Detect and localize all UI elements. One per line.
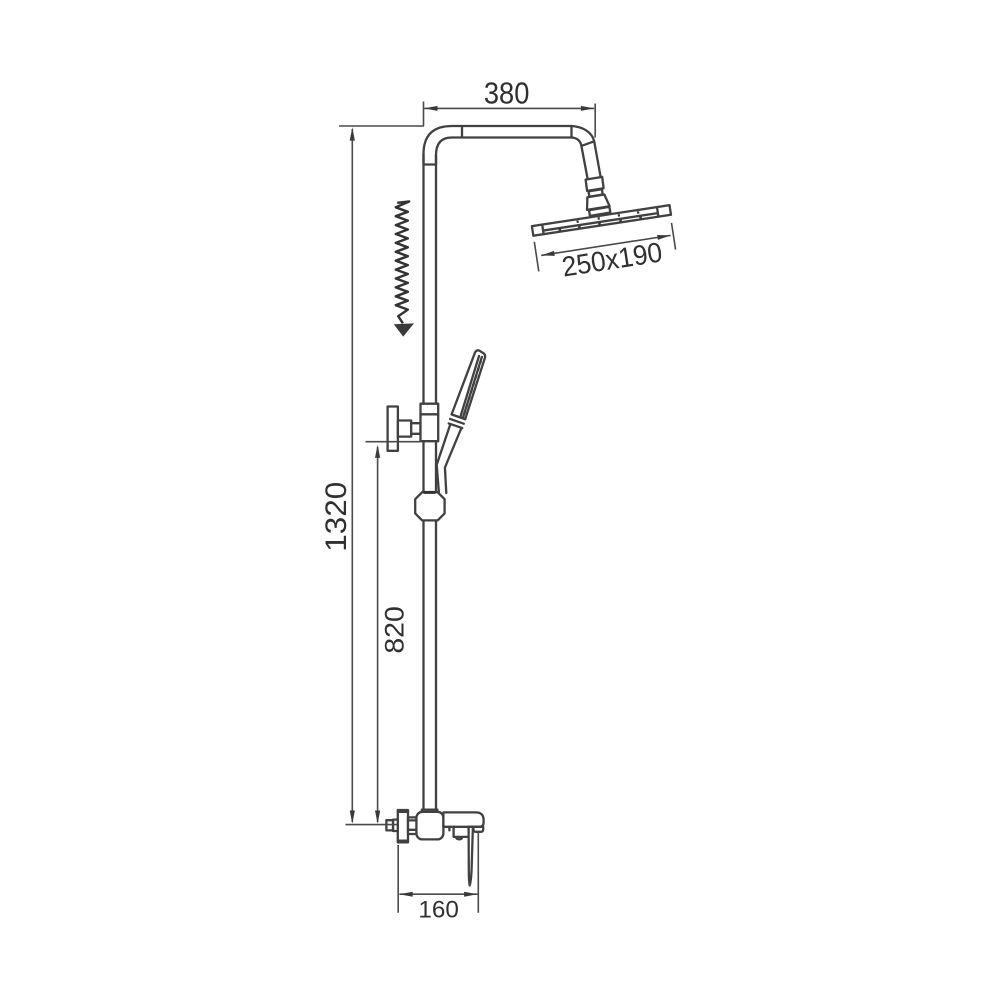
svg-text:380: 380 [484,76,530,111]
svg-text:820: 820 [380,606,410,654]
svg-text:160: 160 [418,896,459,923]
svg-text:1320: 1320 [320,482,353,552]
